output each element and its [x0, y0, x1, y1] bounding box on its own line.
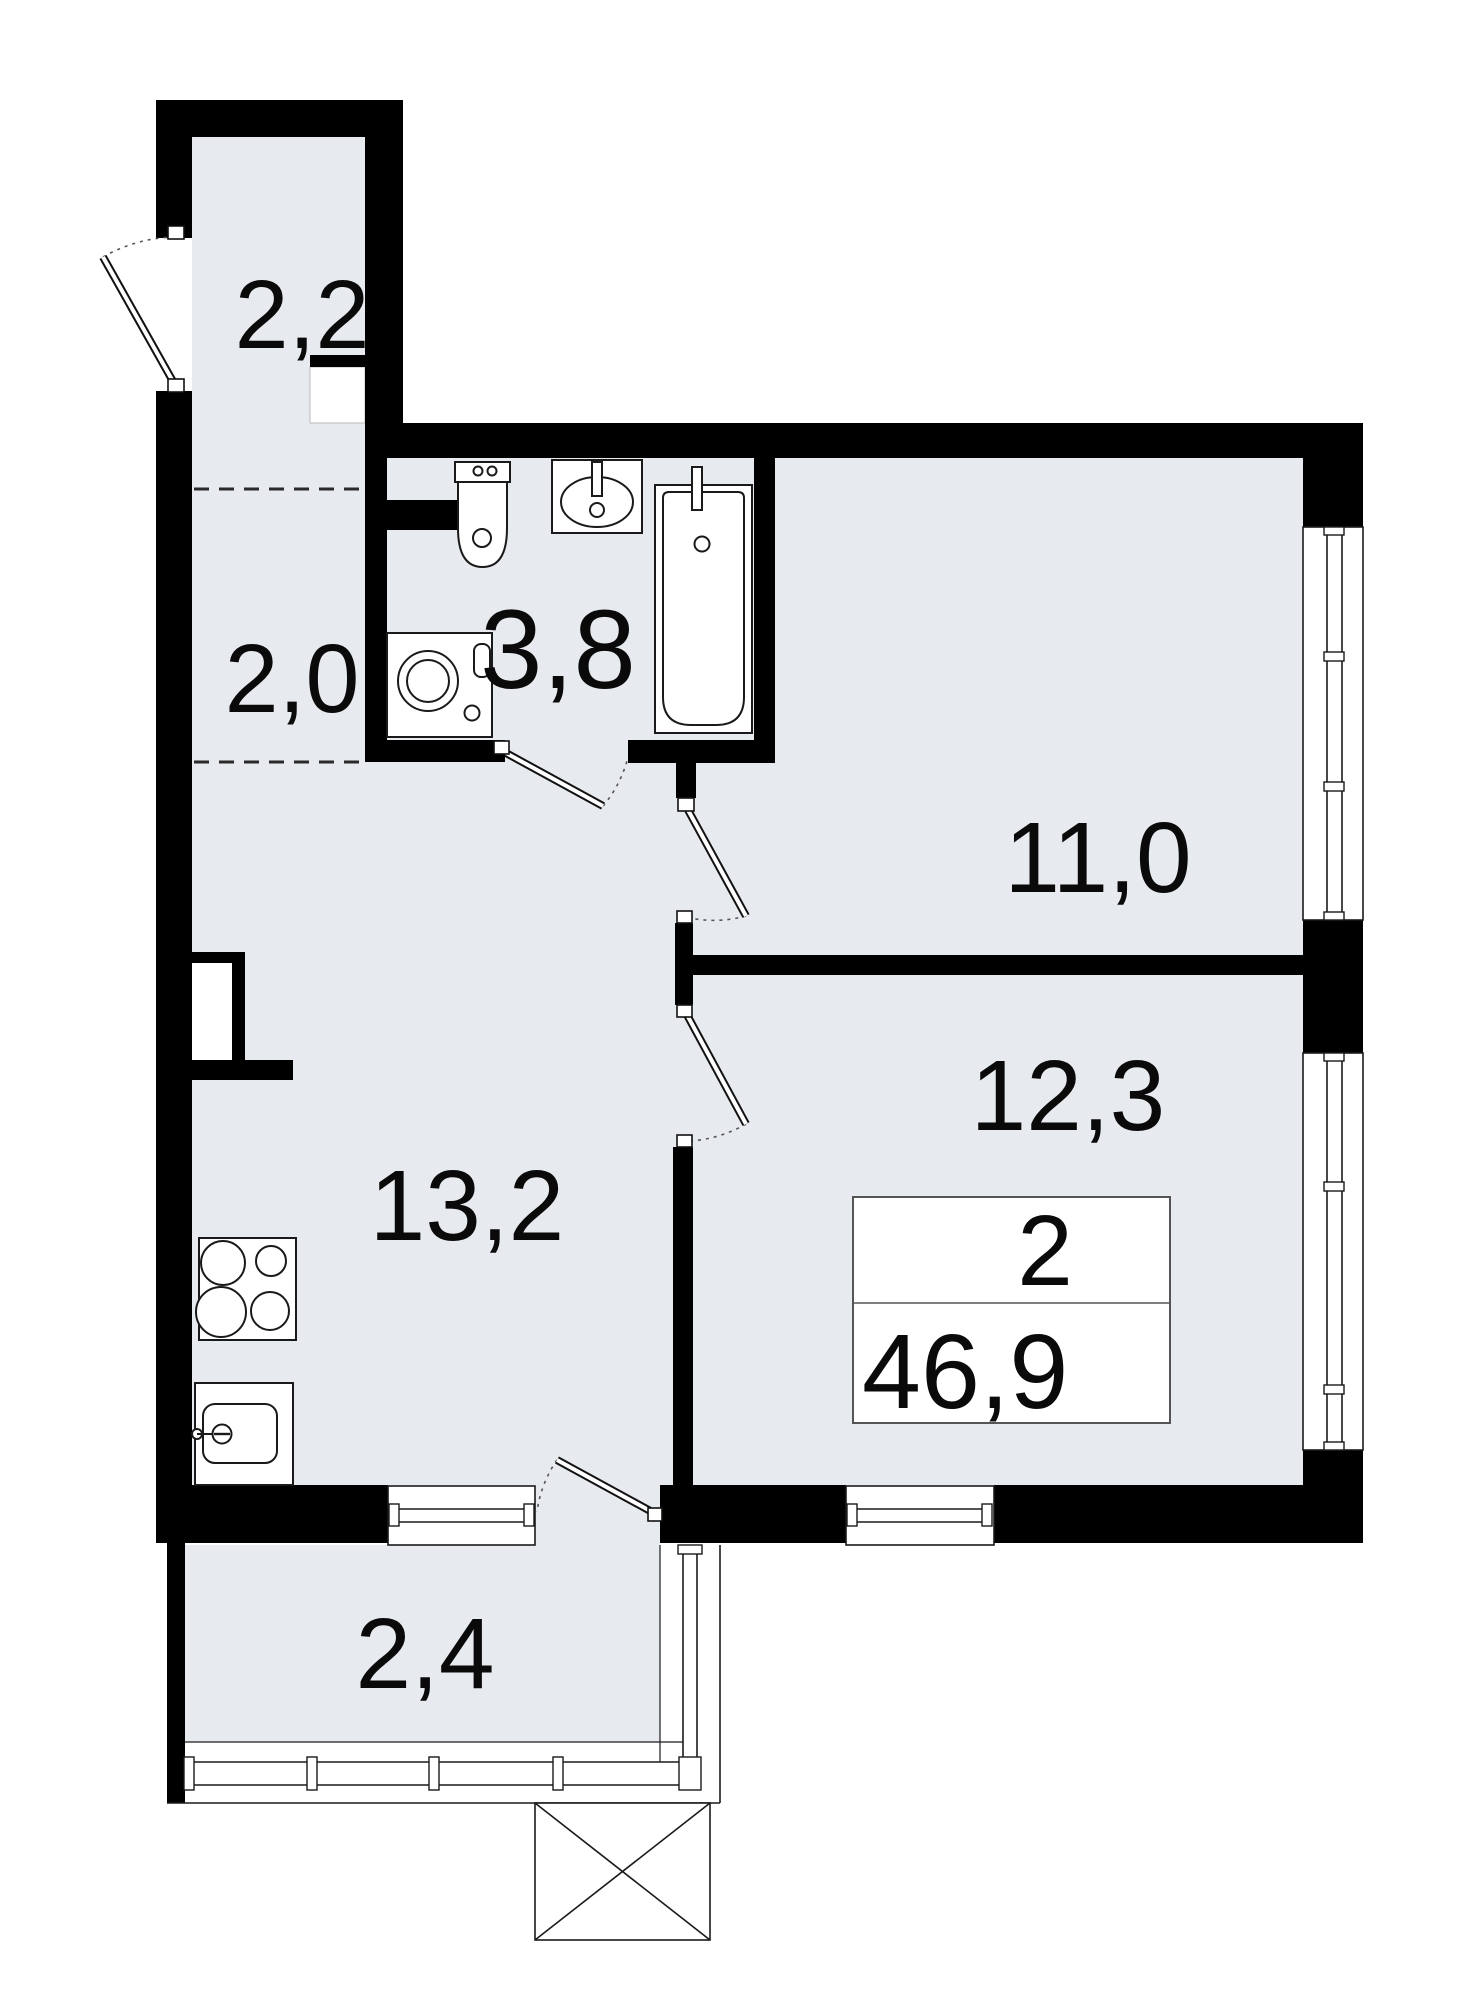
exterior-hatch-box: [535, 1803, 710, 1940]
door-hinge: [677, 911, 692, 923]
floor-balcony-doorway: [535, 1485, 660, 1545]
label-balcony: 2,4: [355, 1598, 494, 1710]
floor-plan: 2 46,9 2,2 2,0 3,8 11,0 12,3 13,2 2,4: [0, 0, 1464, 2000]
wall-segment: [365, 740, 505, 762]
wall-segment: [676, 763, 696, 798]
door-hinge: [678, 798, 694, 811]
entry-door: [103, 226, 184, 392]
door-hinge: [494, 741, 509, 754]
kitchen-sink-icon: [192, 1383, 293, 1485]
duct-wall: [232, 952, 245, 1060]
window-kitchen: [388, 1486, 535, 1545]
wall-segment: [157, 1485, 388, 1543]
wall-segment: [628, 740, 775, 763]
window-mullion: [1324, 782, 1344, 791]
glazing-mullion: [429, 1757, 439, 1790]
toilet-icon: [455, 462, 510, 567]
glazing-mullion: [553, 1757, 563, 1790]
label-entry-lower: 2,0: [225, 624, 360, 733]
summary-box: 2 46,9: [853, 1195, 1170, 1431]
stove-icon: [196, 1238, 296, 1340]
floor-kitchen-living: [192, 762, 673, 1485]
wall-segment: [167, 1543, 185, 1803]
label-entry-upper: 2,2: [235, 260, 370, 369]
wall-segment: [365, 423, 1363, 458]
wall-segment: [156, 100, 192, 238]
window-bedroom: [1303, 527, 1363, 920]
wall-segment: [156, 100, 403, 137]
wall-segment: [754, 458, 775, 763]
label-bedroom: 11,0: [1004, 802, 1191, 914]
rooms-count: 2: [1017, 1195, 1073, 1307]
sink-icon: [552, 460, 642, 533]
entry-recess: [310, 367, 365, 423]
duct-niche: [192, 963, 232, 1060]
window-room-second: [1303, 1053, 1363, 1450]
wall-segment: [1303, 1450, 1363, 1485]
label-kitchen: 13,2: [370, 1150, 565, 1262]
bathtub-icon: [655, 467, 752, 733]
label-bathroom: 3,8: [480, 587, 636, 712]
wall-segment: [673, 1147, 693, 1486]
door-hinge: [648, 1508, 662, 1521]
wall-segment: [660, 1485, 846, 1543]
wall-segment: [1303, 458, 1363, 527]
balcony-sill: [185, 1742, 720, 1803]
window-mullion: [1324, 1182, 1344, 1191]
wall-segment: [365, 137, 403, 458]
wall-segment: [365, 458, 387, 740]
door-hinge: [168, 379, 184, 392]
duct-wall: [192, 1060, 293, 1080]
wall-segment: [994, 1485, 1363, 1543]
window-mullion: [1324, 652, 1344, 661]
wall-segment: [683, 955, 1303, 975]
glazing-mullion: [307, 1757, 317, 1790]
glazing-mullion: [679, 1757, 701, 1790]
door-hinge: [677, 1005, 692, 1017]
total-area: 46,9: [862, 1313, 1068, 1431]
wall-segment: [1303, 920, 1363, 1053]
label-room-second: 12,3: [971, 1040, 1166, 1152]
washing-machine-icon: [387, 633, 492, 737]
door-hinge: [168, 226, 184, 239]
window-mullion: [1324, 1385, 1344, 1394]
door-hinge: [677, 1135, 692, 1147]
glazing-mullion: [184, 1757, 194, 1790]
window-room-second-bottom: [846, 1486, 994, 1545]
wall-segment: [156, 391, 192, 1543]
